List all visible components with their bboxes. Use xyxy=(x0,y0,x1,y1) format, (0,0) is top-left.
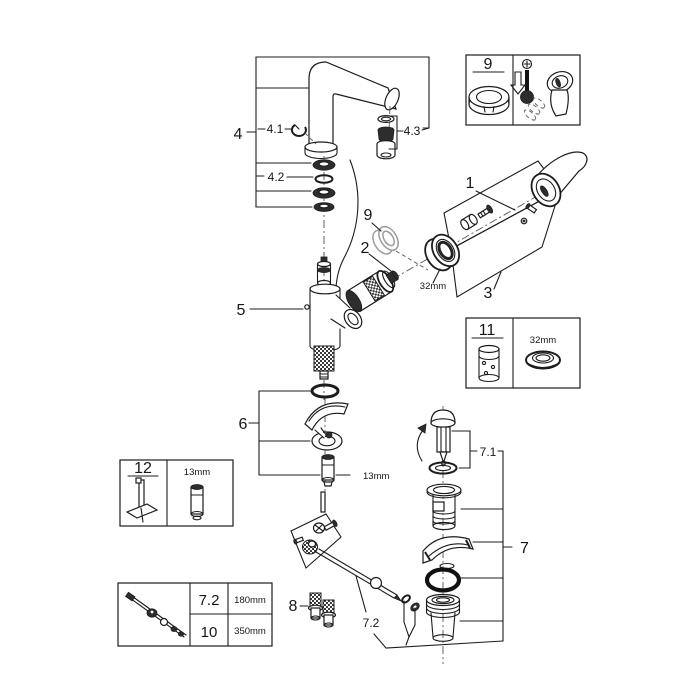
connection-nipples xyxy=(300,593,336,627)
assembly-guide-curve xyxy=(336,160,358,287)
callout-7-2-label: 7.2 xyxy=(363,616,380,630)
inset-11-ring-size: 32mm xyxy=(530,335,556,346)
inset-11-number: 11 xyxy=(479,322,496,339)
popup-pivot-group xyxy=(291,492,503,648)
faucet-body xyxy=(305,252,366,400)
callout-2-label: 2 xyxy=(361,240,370,257)
cartridge xyxy=(343,264,404,314)
stud-drawing xyxy=(191,485,203,520)
callout-4-2-label: 4.2 xyxy=(268,170,285,184)
horseshoe-washer xyxy=(312,428,342,450)
waste-body xyxy=(427,595,460,642)
callout-9-label: 9 xyxy=(364,207,373,224)
inset-12-stud-size: 13mm xyxy=(184,467,210,478)
drain-flange xyxy=(427,484,461,529)
callout-1-label: 1 xyxy=(466,175,475,192)
lever-handle xyxy=(521,152,587,224)
limiter-ring-drawing xyxy=(469,87,509,115)
callout-4-3-label: 4.3 xyxy=(404,124,421,138)
callout-4-label: 4 xyxy=(234,126,243,143)
table-ref-7-2: 7.2 xyxy=(199,592,220,609)
drain-set xyxy=(417,406,512,664)
callout-5-label: 5 xyxy=(237,302,246,319)
callout-6-label: 6 xyxy=(239,416,248,433)
callout-7-label: 7 xyxy=(520,540,529,557)
table-length-350mm: 350mm xyxy=(234,626,266,637)
pivot-pin xyxy=(321,492,325,512)
cap-ring-size-label: 32mm xyxy=(420,281,446,292)
rotate-arrow xyxy=(417,430,423,461)
popup-plug xyxy=(417,410,455,465)
threaded-shank xyxy=(314,346,334,371)
drain-clamp xyxy=(423,537,473,569)
inset-12-number: 12 xyxy=(134,460,152,477)
stud-size-label: 13mm xyxy=(363,471,389,482)
handle-screw xyxy=(477,204,494,219)
table-ref-10: 10 xyxy=(201,624,218,641)
construction-plane-3 xyxy=(451,190,560,297)
handle-adapter xyxy=(459,213,479,231)
mounting-stud xyxy=(322,455,334,487)
swivel-ring-stack xyxy=(313,156,335,263)
popup-rod xyxy=(316,549,401,601)
callout-4-1-label: 4.1 xyxy=(267,122,284,136)
mounting-set xyxy=(249,385,350,492)
rod-o-ring xyxy=(401,594,411,604)
table-length-180mm: 180mm xyxy=(234,595,266,606)
diagram-canvas: 4 4.1 4.2 4.3 xyxy=(0,0,700,700)
callout-8-label: 8 xyxy=(289,598,298,615)
inset-9-number: 9 xyxy=(484,56,493,73)
parts-diagram-page: 4 4.1 4.2 4.3 xyxy=(0,0,700,700)
base-o-ring xyxy=(312,385,338,397)
callout-3-label: 3 xyxy=(484,285,493,302)
callout-7-1-label: 7.1 xyxy=(480,445,497,459)
